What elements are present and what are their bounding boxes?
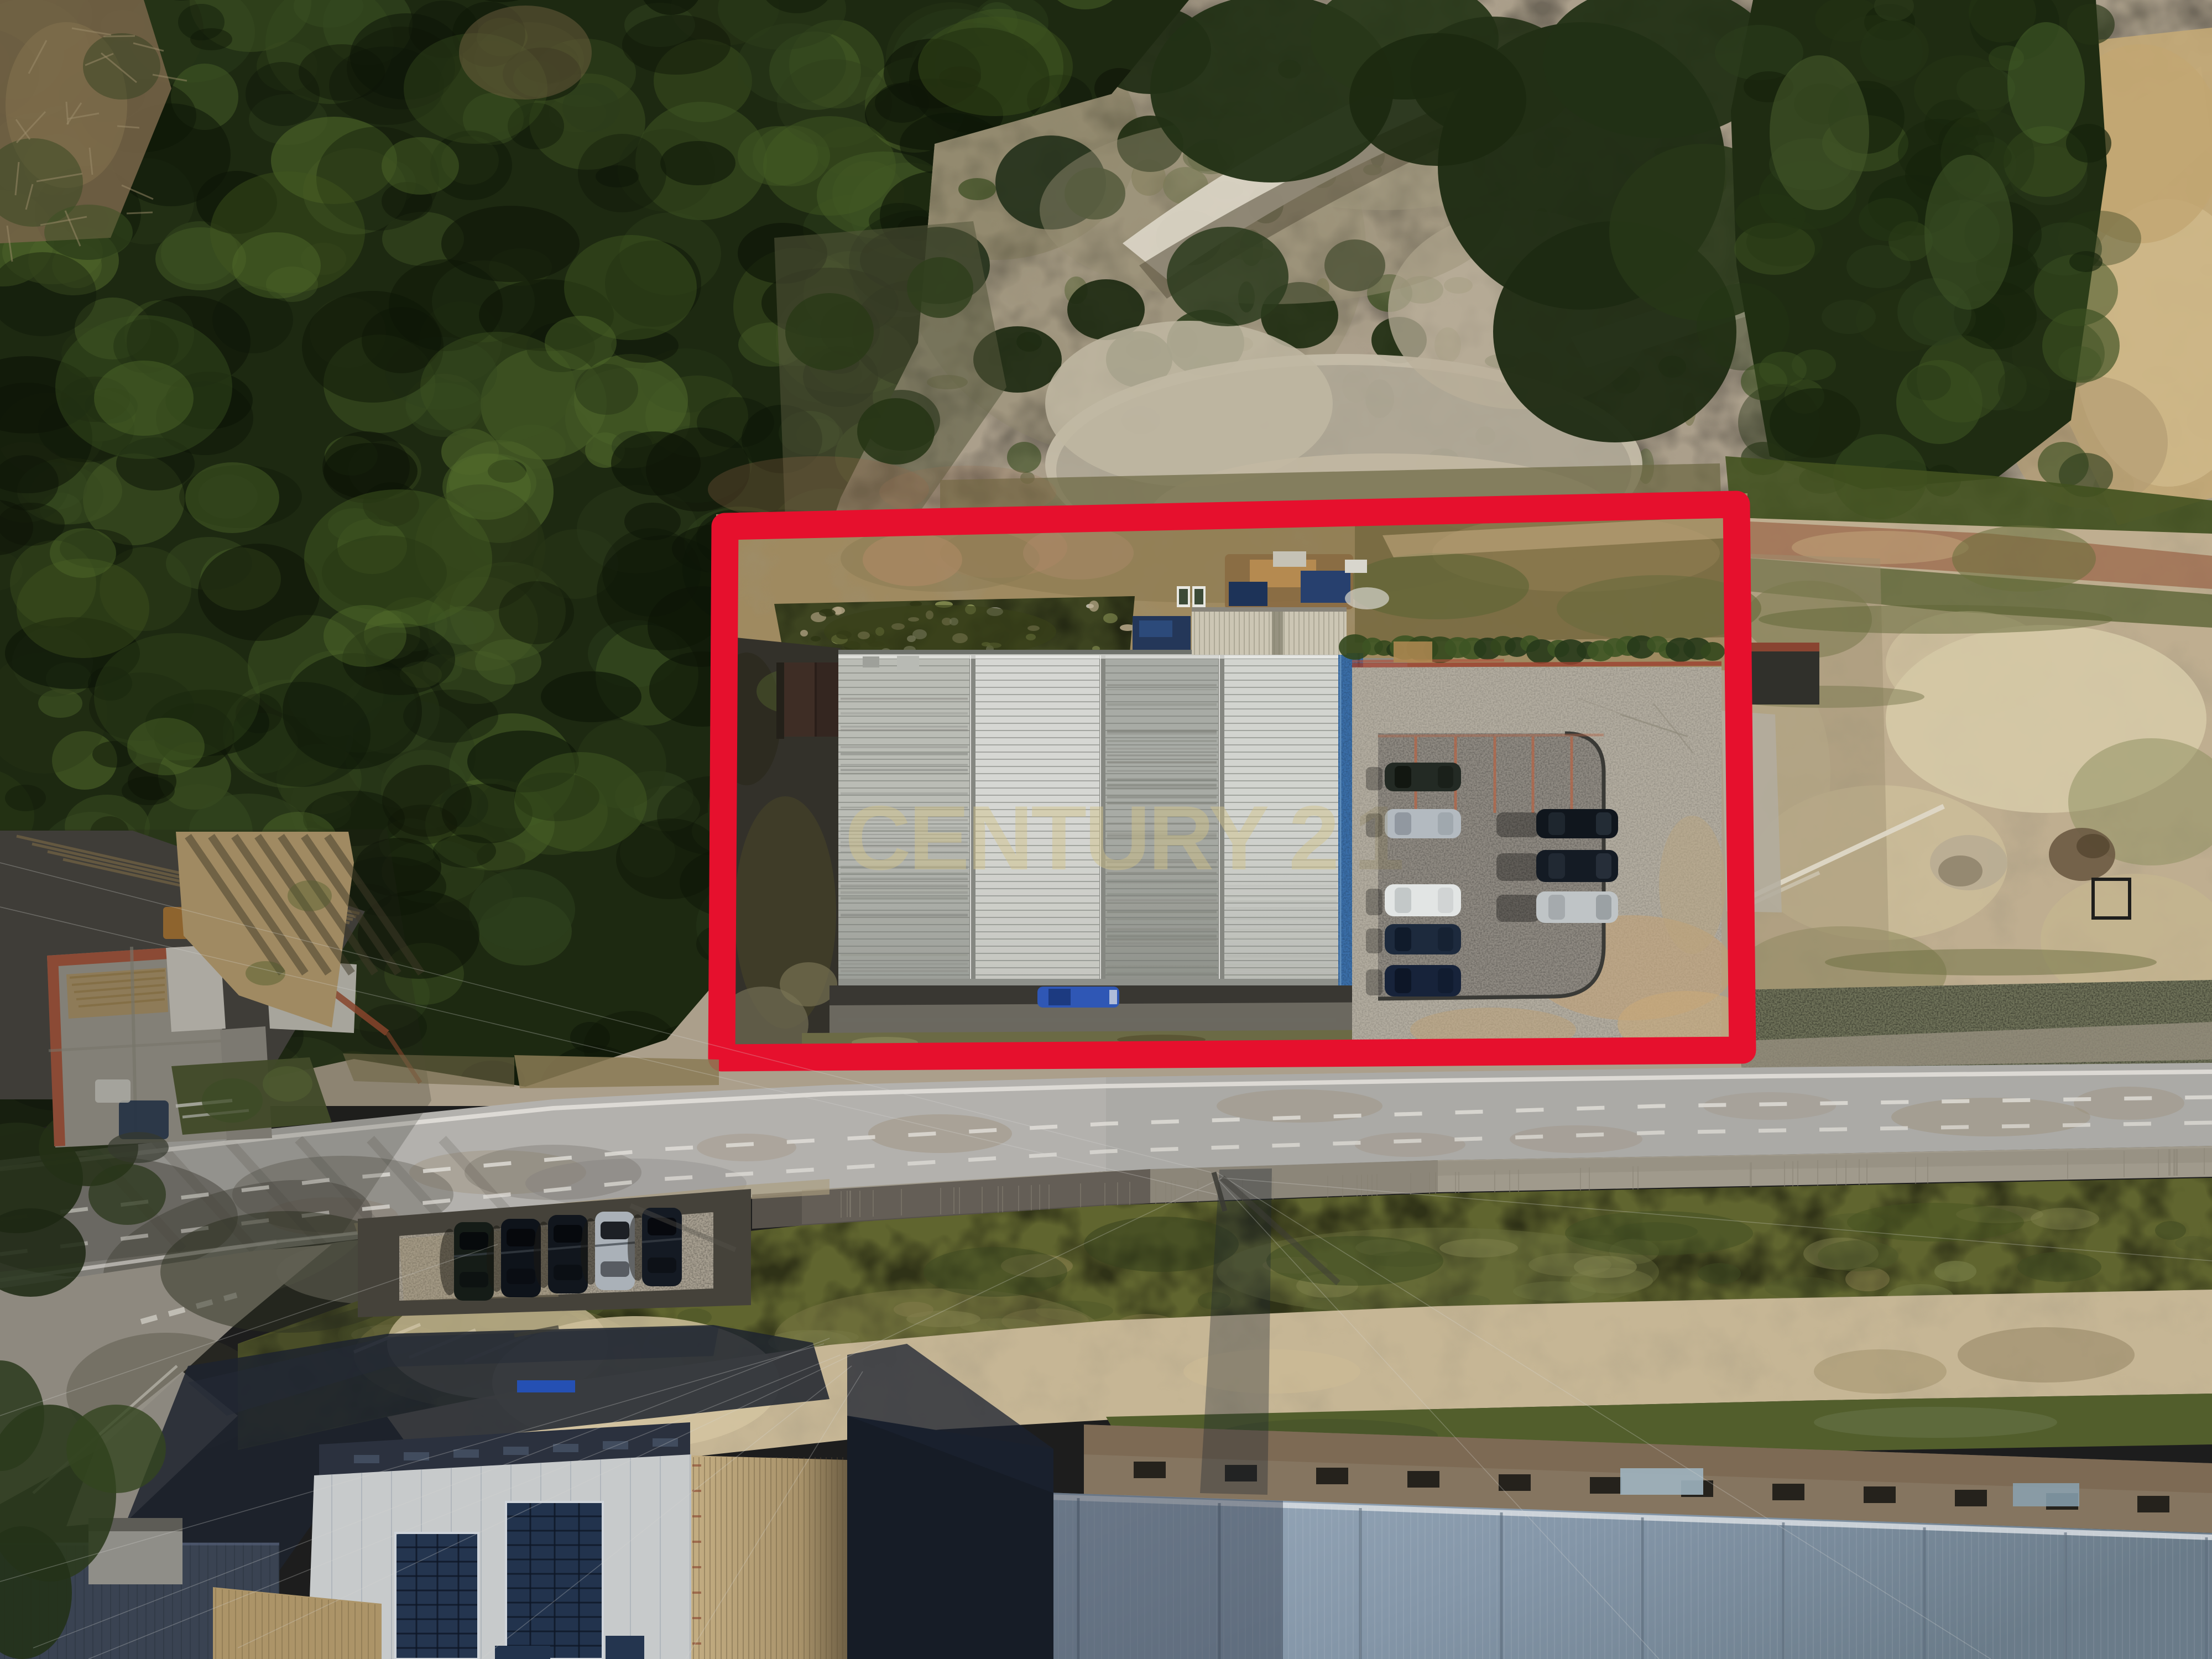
svg-text:CENTURY 2: CENTURY 2 bbox=[845, 787, 1337, 889]
svg-text:1: 1 bbox=[1354, 787, 1405, 889]
